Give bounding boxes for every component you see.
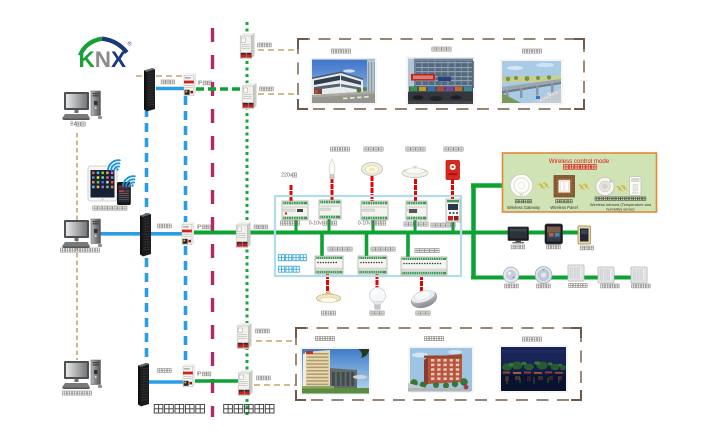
svg-text:Wireless Gateway: Wireless Gateway — [507, 205, 541, 210]
svg-text:IP: IP — [197, 372, 202, 378]
svg-text:0-10v: 0-10v — [358, 221, 371, 227]
svg-text:BA: BA — [70, 122, 77, 128]
svg-text:Wireless control mode: Wireless control mode — [549, 158, 610, 165]
svg-text:Wireless Panel: Wireless Panel — [550, 205, 577, 210]
svg-text:0-10v: 0-10v — [309, 221, 322, 227]
svg-text:IP: IP — [197, 225, 202, 231]
svg-text:220v: 220v — [281, 173, 293, 179]
svg-text:®: ® — [128, 41, 132, 48]
svg-text:KNX: KNX — [79, 47, 127, 72]
svg-text:IP: IP — [198, 81, 203, 87]
svg-text:humidity) sensor: humidity) sensor — [606, 207, 635, 212]
